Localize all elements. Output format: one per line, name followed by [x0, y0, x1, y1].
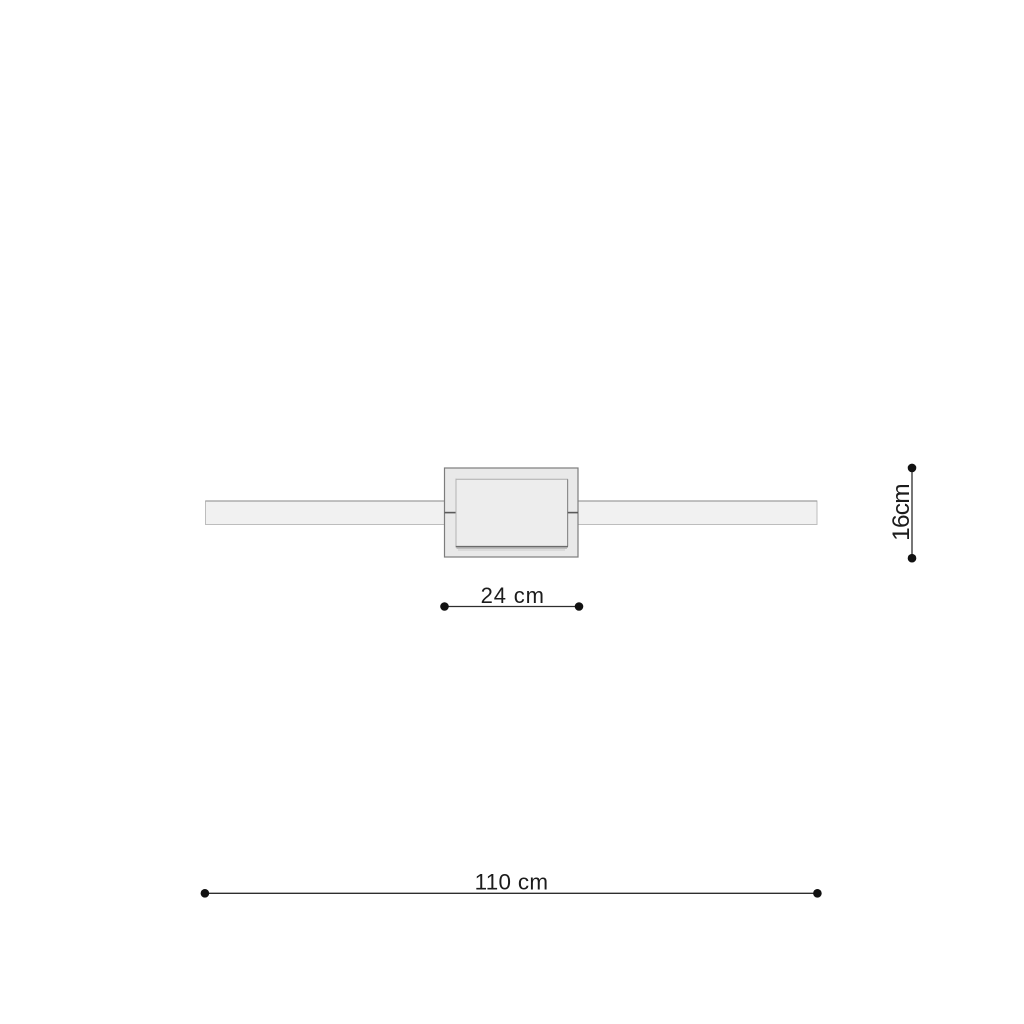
svg-text:24 cm: 24 cm [481, 583, 545, 608]
svg-text:110 cm: 110 cm [475, 870, 549, 895]
svg-text:16cm: 16cm [888, 484, 915, 541]
